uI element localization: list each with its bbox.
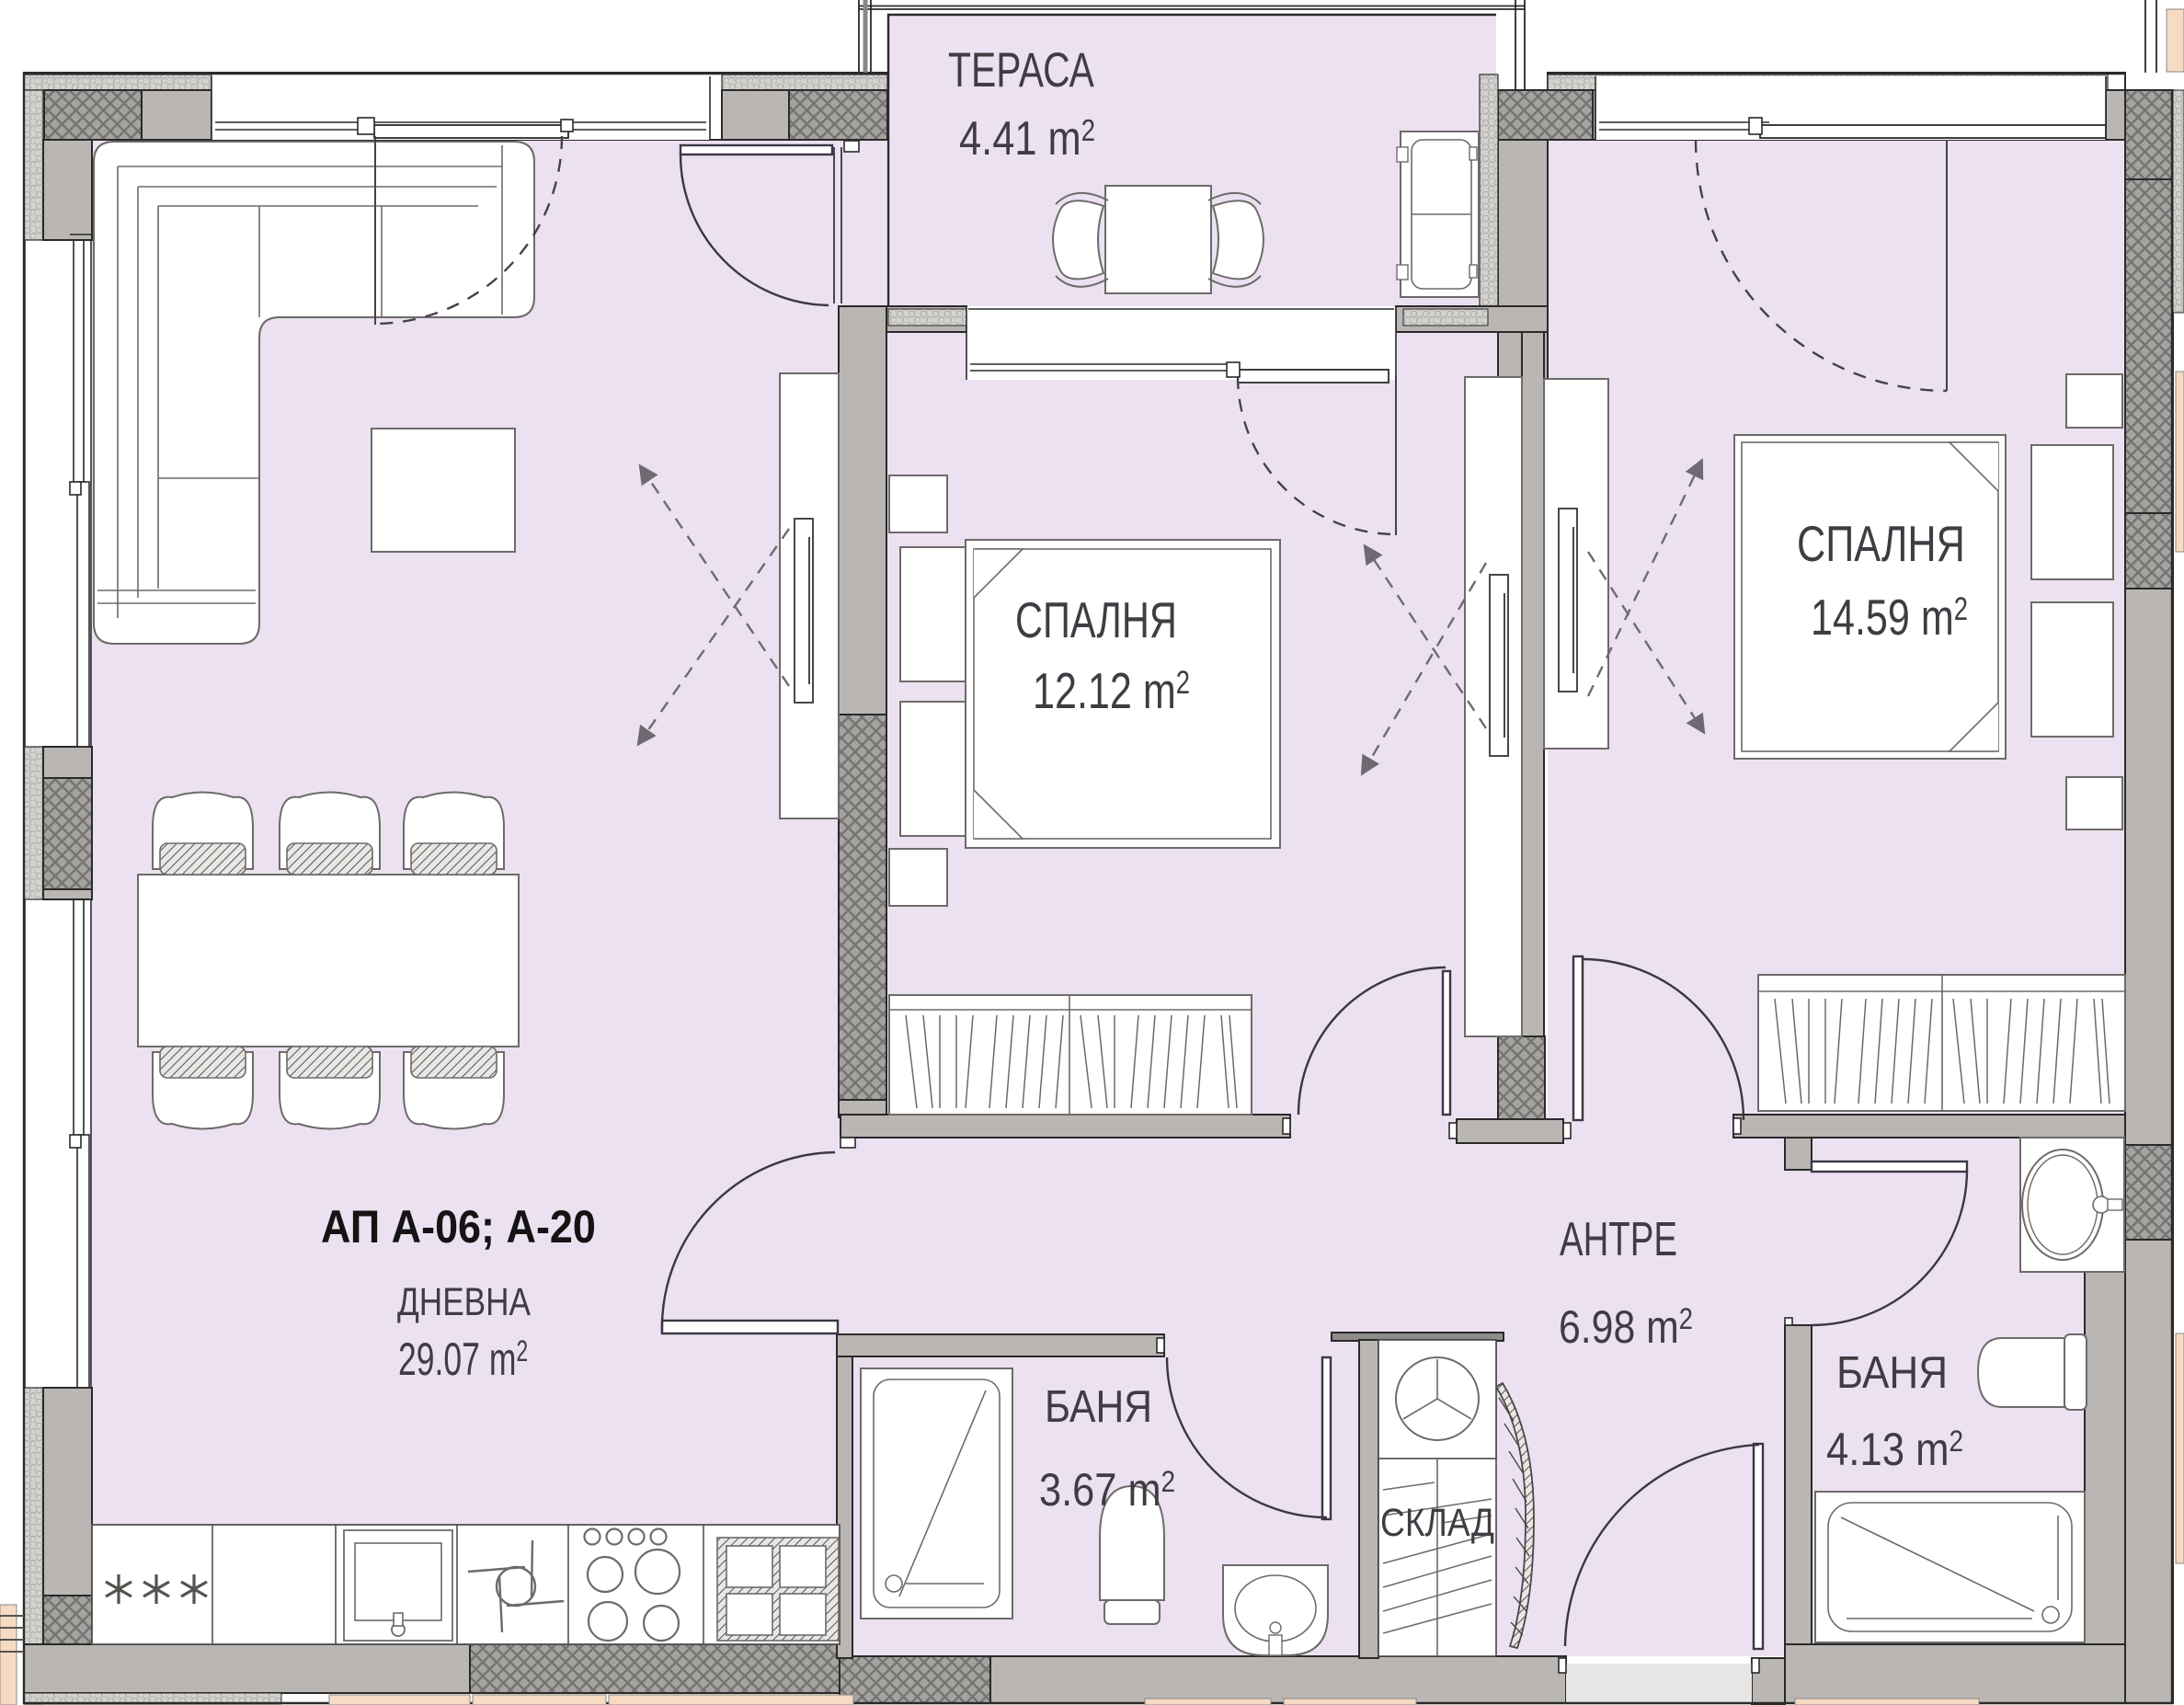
svg-text:3.67 m2: 3.67 m2	[1039, 1464, 1175, 1516]
svg-text:БАНЯ: БАНЯ	[1836, 1347, 1948, 1398]
svg-text:БАНЯ: БАНЯ	[1045, 1380, 1152, 1431]
svg-text:4.13 m2: 4.13 m2	[1826, 1423, 1963, 1474]
svg-text:29.07 m2: 29.07 m2	[398, 1334, 528, 1385]
svg-text:12.12 m2: 12.12 m2	[1033, 663, 1190, 719]
svg-text:4.41 m2: 4.41 m2	[959, 112, 1095, 166]
svg-text:6.98 m2: 6.98 m2	[1559, 1301, 1693, 1353]
svg-text:14.59 m2: 14.59 m2	[1811, 589, 1968, 646]
svg-text:СПАЛНЯ: СПАЛНЯ	[1015, 592, 1177, 648]
svg-text:ДНЕВНА: ДНЕВНА	[397, 1280, 532, 1324]
svg-text:АНТРЕ: АНТРЕ	[1560, 1212, 1677, 1265]
svg-text:АП А-06; А-20: АП А-06; А-20	[321, 1202, 596, 1253]
svg-text:СПАЛНЯ: СПАЛНЯ	[1797, 516, 1965, 572]
svg-text:ТЕРАСА: ТЕРАСА	[948, 43, 1094, 97]
svg-text:СКЛАД: СКЛАД	[1380, 1500, 1494, 1544]
